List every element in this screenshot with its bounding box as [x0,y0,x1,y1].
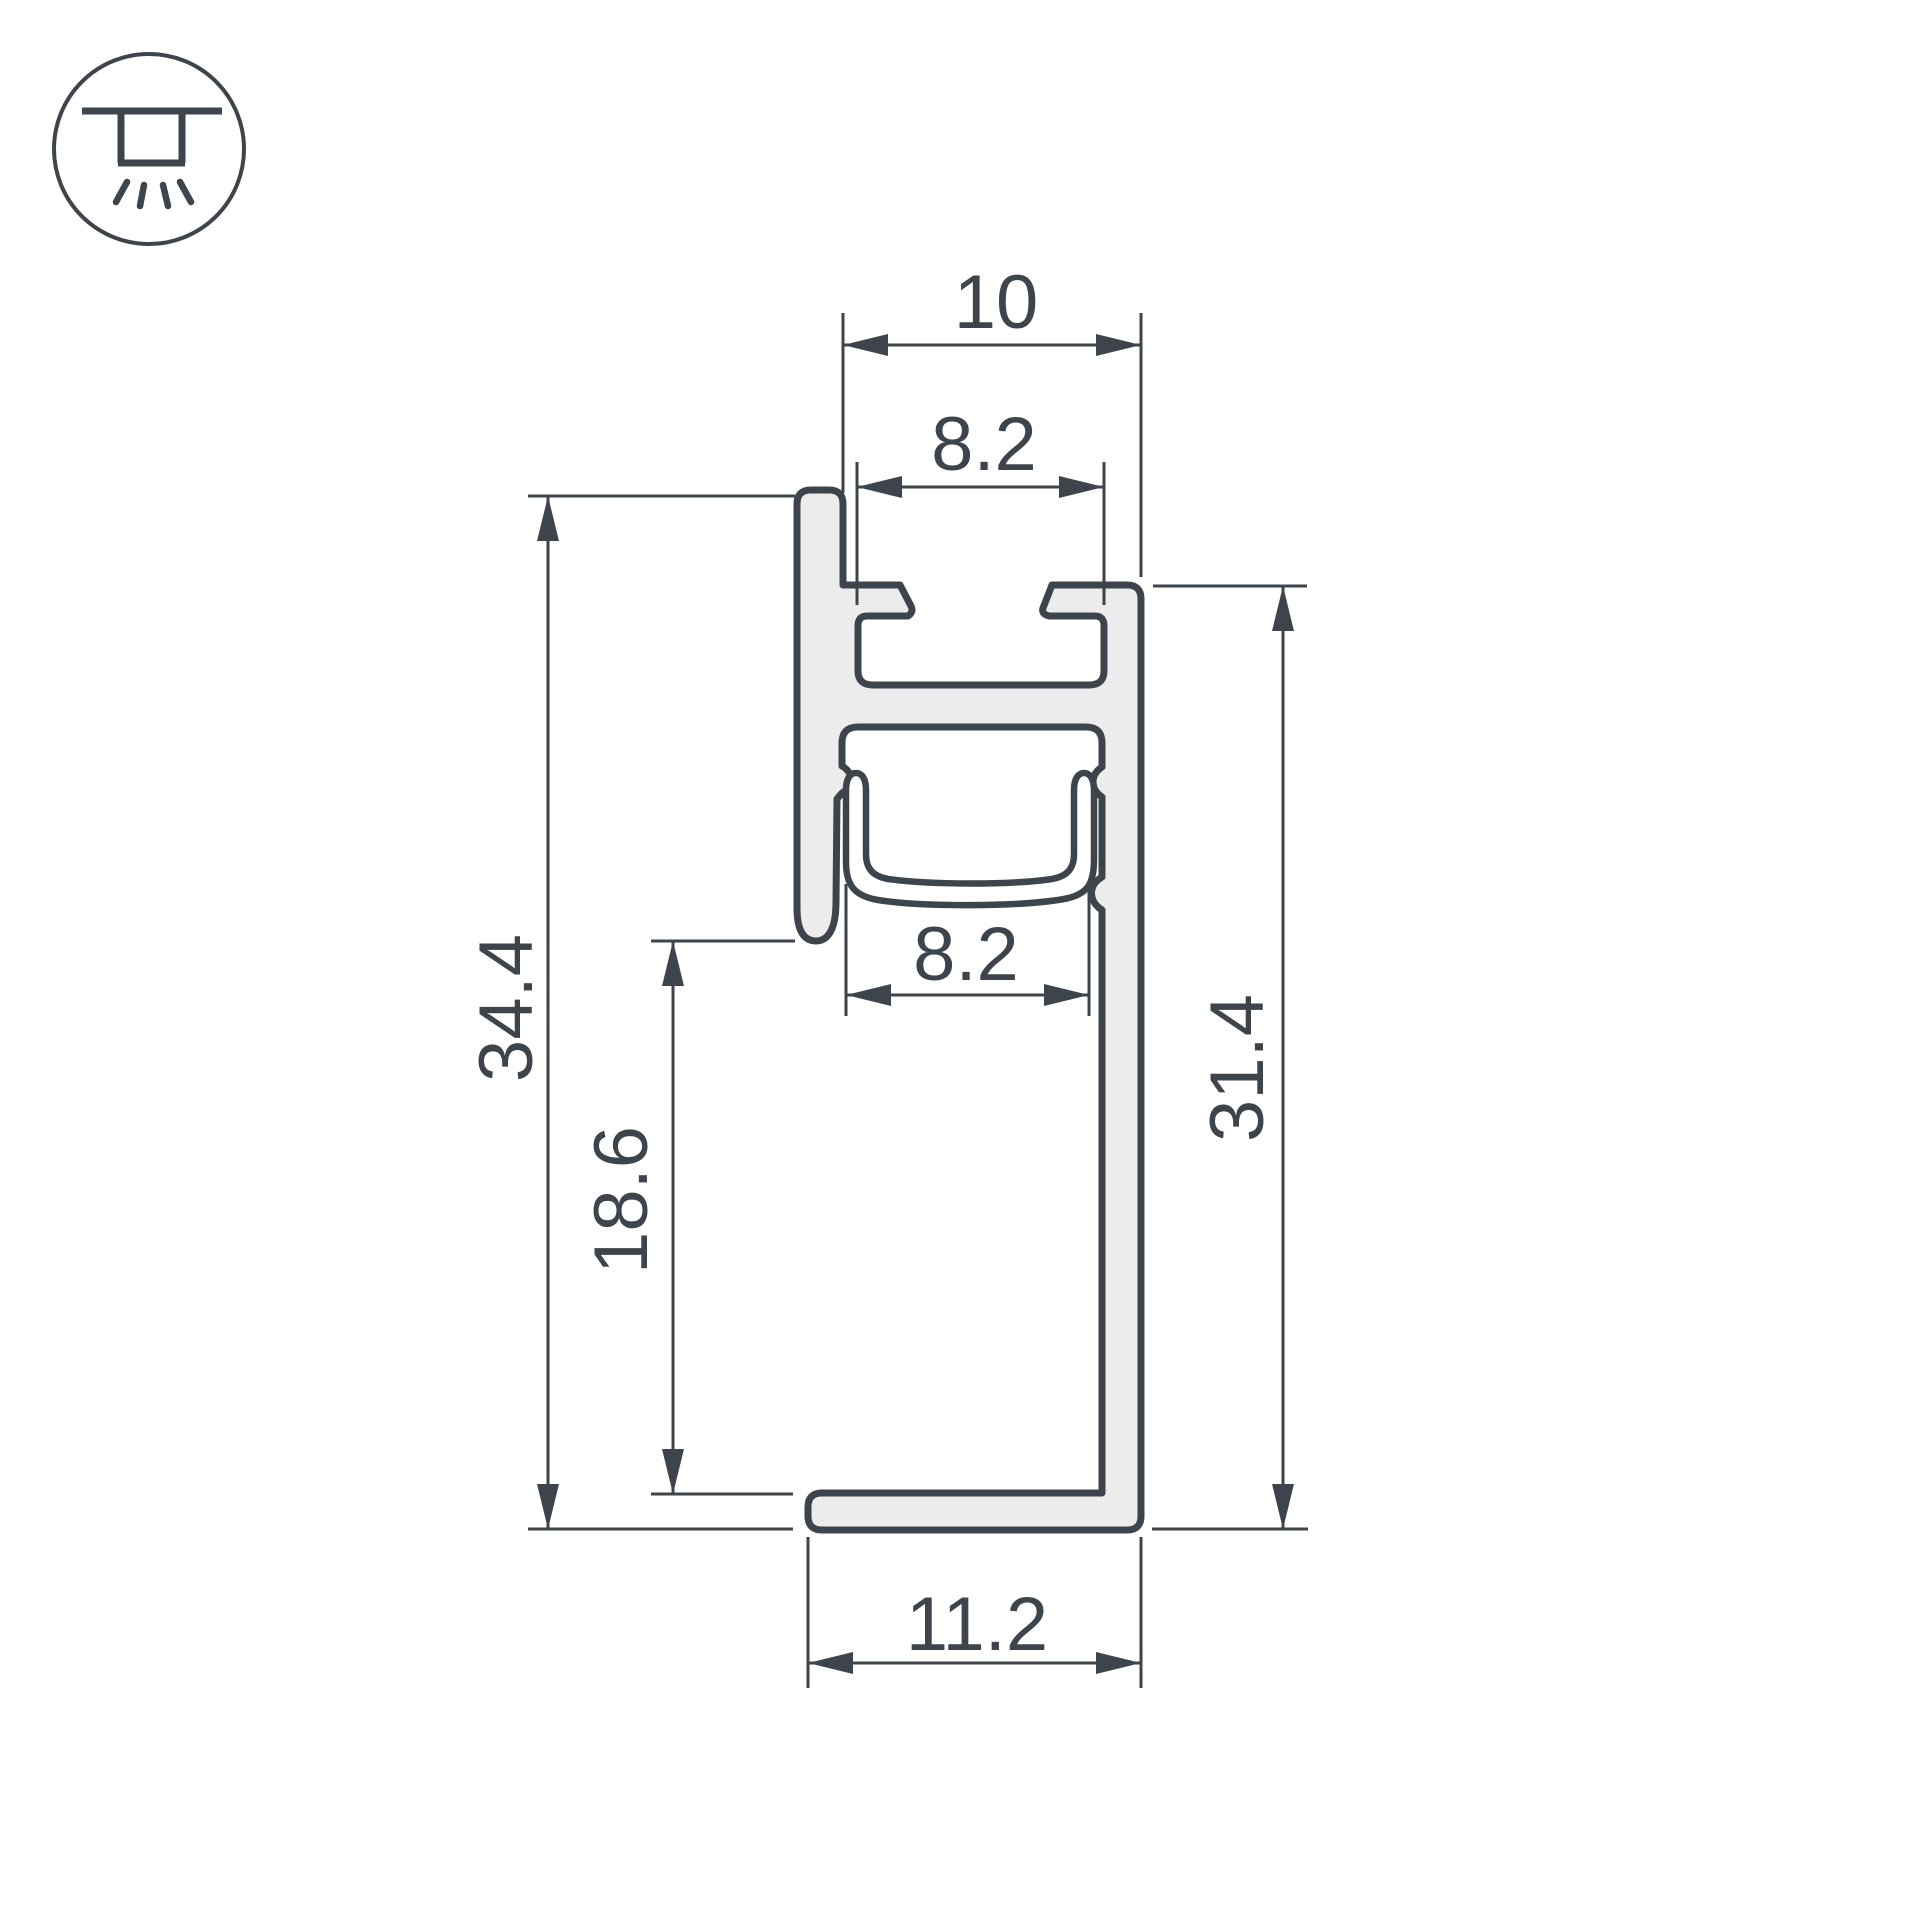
dimension-top-inner-width: 8.2 [857,402,1104,605]
drawing-page: 10 8.2 8.2 34.4 18.6 31.4 [0,0,1920,1920]
dimension-label-bottom-flange-width: 11.2 [906,1582,1048,1667]
profile-technical-drawing: 10 8.2 8.2 34.4 18.6 31.4 [0,0,1920,1920]
dimension-label-led-opening-width: 8.2 [913,912,1019,997]
diffuser-cover [846,773,1094,905]
dimension-label-lower-clearance-height: 18.6 [579,1126,664,1274]
dimension-label-top-outer-width: 10 [954,260,1039,345]
dimension-label-right-side-height: 31.4 [1195,994,1280,1142]
dimension-lower-clearance-height: 18.6 [579,941,795,1494]
dimension-label-total-height: 34.4 [464,934,549,1082]
dimension-bottom-flange-width: 11.2 [808,1537,1141,1688]
icon-circle [54,54,244,244]
dimension-label-top-inner-width: 8.2 [931,402,1037,487]
dimension-right-side-height: 31.4 [1152,586,1308,1529]
icon-fixture-box [118,108,185,163]
recessed-ceiling-downlight-icon [54,54,244,244]
icon-light-rays [116,182,191,206]
dimension-total-height: 34.4 [464,496,795,1529]
